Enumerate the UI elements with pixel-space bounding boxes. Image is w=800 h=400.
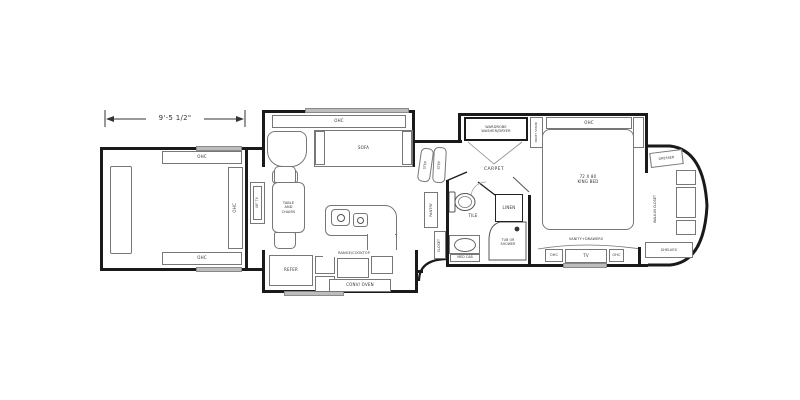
medicine-cabinet: MED CAB [450,254,480,262]
front-cabinet [110,166,132,254]
dining-chair [274,166,296,183]
closet-cabinet [676,187,696,218]
tile-floor-label: TILE [463,213,483,220]
kitchen-sink [331,209,350,226]
overhead-cabinet: OHC [228,167,243,249]
wall [458,113,648,116]
wardrobe-label-line2: WASHER/DRYER [481,129,510,133]
closet-label: CLOSET [438,239,442,252]
tub-shower-text: TUB OR SHOWER [499,239,517,246]
range-cooktop [337,258,369,278]
ohc-label: OHC [233,203,238,213]
vanity-drawers-label: VANITY+DRAWERS [556,236,616,243]
wall [458,113,461,143]
rv-floorplan: 9'-5 1/2" OHC OHC OHC OHC SOFA 48" TV TA… [0,0,800,400]
kitchen-sink [353,213,368,227]
overhead-cabinet: OHC [162,151,242,164]
bath-sink [454,238,476,252]
kitchen-counter [315,256,335,274]
wall [645,113,648,173]
window [196,267,242,272]
walk-in-closet-text: WALK-IN CLOSET [654,195,658,223]
bedroom-tv: TV [565,249,607,263]
dresser: DRESSER [649,149,684,168]
window [563,263,607,268]
night-stand [633,117,644,148]
dining-chair [274,232,296,249]
refrigerator: REFER [269,255,313,286]
convection-oven: CONV/ OVEN [329,279,391,292]
front-width-dimension: 9'-5 1/2" [145,112,205,125]
night-stand-label: NIGHT STAND [535,122,538,142]
overhead-cabinet: OHC [546,117,632,129]
walk-in-closet-label: WALK-IN CLOSET [650,175,662,243]
wall [638,247,641,265]
tv-48-label: 48" TV [256,197,260,208]
bath-vanity [449,235,480,254]
sink-drain [357,217,364,224]
overhead-cabinet: OHC [162,252,242,265]
wall [528,195,531,265]
pantry-label: PANTRY [429,203,433,217]
kitchen-counter [371,256,393,274]
step-label: STEP [423,161,428,170]
step: STEP [432,147,447,184]
sofa: SOFA [314,130,413,167]
overhead-cabinet: OHC [545,249,563,262]
carpet-floor-label: CARPET [474,166,514,174]
tv-48: 48" TV [253,186,262,220]
king-bed: 72 X 80 KING BED [542,129,634,230]
shelves: SHELVES [645,242,693,258]
closet: CLOSET [434,231,446,259]
window [305,108,409,113]
sofa-armrest [315,131,325,165]
step-label: STEP [437,161,441,169]
wall [415,270,423,273]
closet-cabinet [676,220,696,235]
sofa-armrest [402,131,412,165]
table-label: TABLE AND CHAIRS [279,201,299,213]
dining-table: TABLE AND CHAIRS [272,182,305,233]
overhead-cabinet: OHC [272,115,406,128]
tub-shower-label: TUB OR SHOWER [492,230,524,256]
bed-type-label: KING BED [577,180,598,185]
island-seam [368,233,395,236]
linen-closet: LINEN [495,194,523,222]
overhead-cabinet: OHC [609,249,624,262]
pantry: PANTRY [424,192,438,228]
wardrobe-washer-dryer: WARDROBE WASHER/DRYER [464,117,528,141]
wall [415,140,462,143]
sink-drain [337,214,345,222]
closet-cabinet [676,170,696,185]
recliner-chair [267,131,307,167]
wall [448,264,648,267]
